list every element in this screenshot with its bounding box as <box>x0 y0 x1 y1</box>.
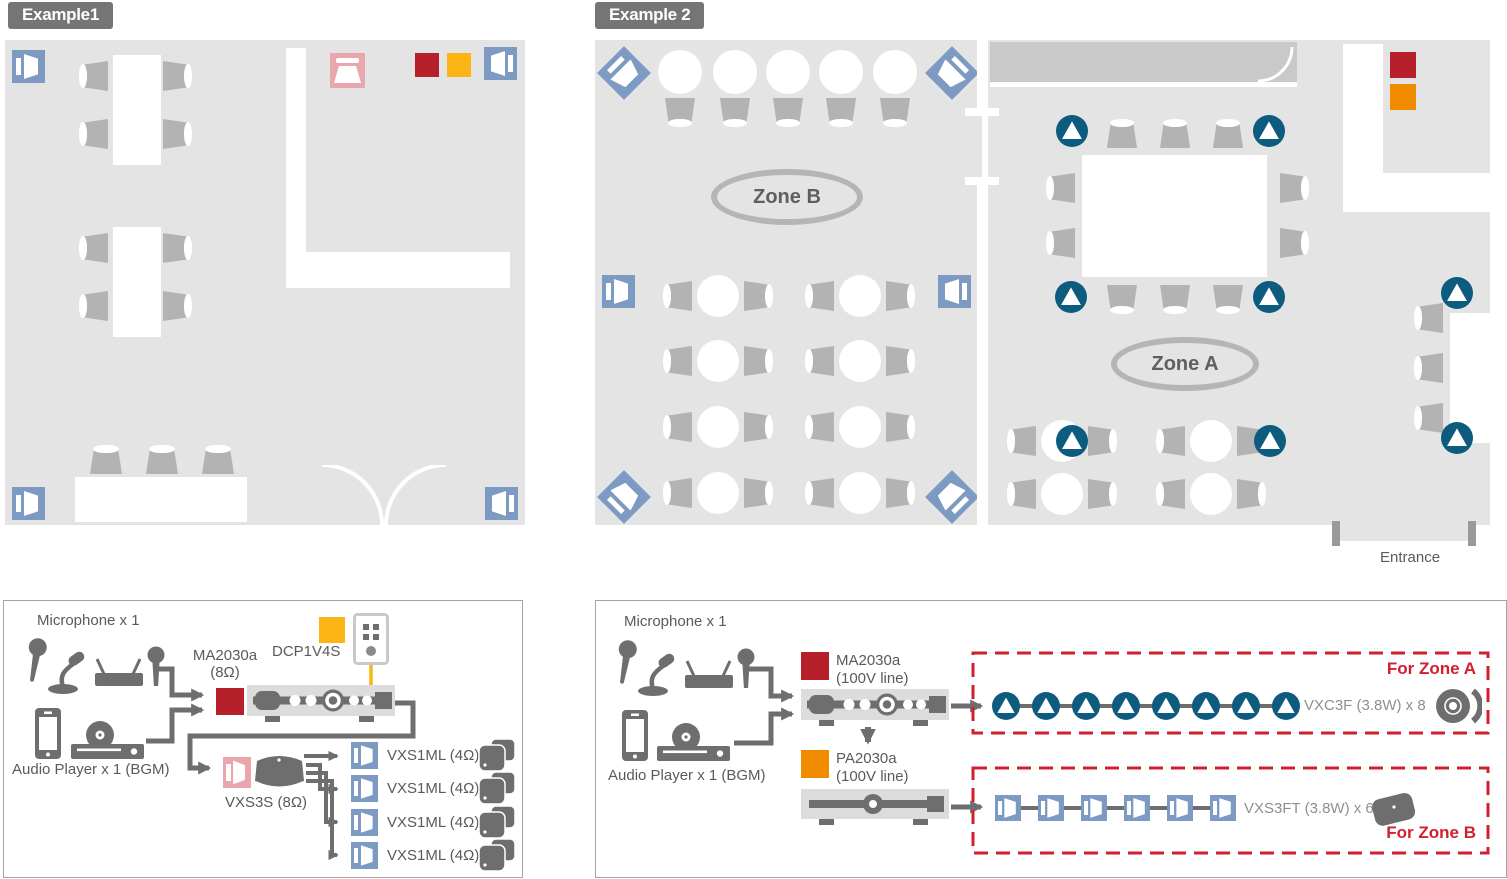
chair <box>744 346 774 376</box>
vxs1ml-product <box>477 837 519 873</box>
wall-speaker-icon <box>351 809 378 836</box>
dcp1v4s-legend <box>319 617 345 643</box>
chair <box>1006 426 1036 456</box>
corner-speaker-icon <box>925 470 979 524</box>
chair <box>744 412 774 442</box>
chair <box>720 98 750 128</box>
vxs1ml-product <box>477 804 519 840</box>
round-table <box>1190 473 1232 515</box>
dcp1v4s-panel <box>353 613 389 665</box>
ceiling-speaker-icon <box>1192 692 1220 720</box>
zone-b-tag: For Zone B <box>1256 823 1476 843</box>
entrance-floor <box>1340 525 1468 541</box>
zone-a-chain-label: VXC3F (3.8W) x 8 <box>1304 697 1426 715</box>
amp2-model-label: PA2030a <box>836 750 897 768</box>
chair <box>826 98 856 128</box>
round-table <box>697 472 739 514</box>
ceiling-speaker-icon <box>1441 422 1473 454</box>
pa2030a-legend <box>801 750 829 778</box>
chair <box>78 233 108 263</box>
chair <box>662 478 692 508</box>
smartphone-icon <box>621 709 649 763</box>
floor-plan-example2-zoneB: Zone B <box>595 40 982 525</box>
round-table <box>839 472 881 514</box>
chair <box>880 98 910 128</box>
ceiling-speaker-icon <box>1072 692 1100 720</box>
wall-speaker-icon <box>12 50 45 83</box>
zone-a-tag: For Zone A <box>1256 659 1476 679</box>
round-table <box>697 275 739 317</box>
cd-player-icon <box>70 719 150 761</box>
ceiling-speaker-icon <box>1272 692 1300 720</box>
chair <box>1213 118 1243 148</box>
chair <box>146 444 178 474</box>
chair <box>78 291 108 321</box>
double-door-icon <box>318 465 450 525</box>
wall-speaker-icon <box>1038 795 1064 821</box>
round-table <box>658 50 702 94</box>
chair <box>90 444 122 474</box>
amplifier-image <box>247 683 397 723</box>
pa2030a-legend <box>1390 84 1416 110</box>
chair <box>1413 303 1443 333</box>
ceiling-speaker-icon <box>1055 281 1087 313</box>
round-table <box>839 275 881 317</box>
chair <box>662 412 692 442</box>
amp1-model-label: MA2030a <box>836 652 900 670</box>
microphone-icons <box>19 633 167 695</box>
wall-speaker-icon <box>351 775 378 802</box>
counter <box>990 42 1297 82</box>
ceiling-speaker-icon <box>1253 281 1285 313</box>
chair <box>744 478 774 508</box>
chair <box>886 346 916 376</box>
ceiling-speaker-icon <box>1032 692 1060 720</box>
ceiling-speaker-icon <box>1056 115 1088 147</box>
example1-badge: Example1 <box>8 2 113 29</box>
chair <box>202 444 234 474</box>
speaker-row-label: VXS1ML (4Ω) <box>387 780 479 798</box>
floor-plan-example2-zoneA: Zone A <box>988 40 1490 525</box>
vxs3s-product <box>252 749 308 794</box>
corner-speaker-icon <box>597 46 651 100</box>
wall-speaker-icon <box>12 487 45 520</box>
chair <box>1045 173 1075 203</box>
chair <box>163 233 193 263</box>
wall <box>977 185 987 525</box>
entrance-post <box>1332 521 1340 546</box>
chair <box>78 119 108 149</box>
chair <box>163 291 193 321</box>
ma2030a-legend <box>415 53 439 77</box>
subwoofer-icon <box>223 757 251 788</box>
zone-b-chain-label: VXS3FT (3.8W) x 6 <box>1244 800 1374 818</box>
ceiling-speaker-icon <box>1253 115 1285 147</box>
vxs1ml-product <box>477 770 519 806</box>
chair <box>886 281 916 311</box>
smartphone-icon <box>34 707 62 761</box>
amp1-spec-label: (100V line) <box>836 670 909 688</box>
wall <box>965 177 999 185</box>
amplifier-image <box>801 687 951 727</box>
chair <box>1213 285 1243 315</box>
wall-speaker-icon <box>995 795 1021 821</box>
chair <box>1280 173 1310 203</box>
corner-speaker-icon <box>597 470 651 524</box>
wall-speaker-icon <box>1210 795 1236 821</box>
chair <box>804 281 834 311</box>
wall <box>286 252 510 288</box>
chair <box>1237 479 1267 509</box>
round-table <box>839 406 881 448</box>
ma2030a-legend <box>216 688 244 715</box>
chair <box>804 412 834 442</box>
chair <box>1160 285 1190 315</box>
amp-model-label: MA2030a <box>180 647 270 665</box>
example1-connection-diagram: Microphone x 1 Audio Player x 1 (BGM) M <box>3 600 523 878</box>
ceiling-speaker-chain <box>992 692 1312 720</box>
chair <box>163 119 193 149</box>
ma2030a-legend <box>1390 52 1416 78</box>
ceiling-speaker-icon <box>1112 692 1140 720</box>
ceiling-speaker-icon <box>992 692 1020 720</box>
chair <box>1107 118 1137 148</box>
vxc3f-product <box>1434 684 1482 728</box>
chair <box>163 61 193 91</box>
wall-speaker-icon <box>485 487 518 520</box>
wall-speaker-icon <box>351 842 378 869</box>
zone-b-ellipse: Zone B <box>711 169 863 225</box>
round-table <box>873 50 917 94</box>
wall-speaker-icon <box>938 275 971 308</box>
wall-speaker-icon <box>351 742 378 769</box>
chair <box>1413 353 1443 383</box>
table <box>1082 155 1267 277</box>
wall <box>965 108 999 116</box>
cd-player-icon <box>656 721 736 763</box>
microphone-label: Microphone x 1 <box>624 613 727 631</box>
chair <box>1088 426 1118 456</box>
round-table <box>1190 420 1232 462</box>
table <box>75 477 247 522</box>
wall-speaker-icon <box>1167 795 1193 821</box>
chair <box>744 281 774 311</box>
zone-a-label: Zone A <box>1151 353 1218 376</box>
amp2-spec-label: (100V line) <box>836 768 909 786</box>
chair <box>1280 228 1310 258</box>
chair <box>1006 479 1036 509</box>
round-table <box>697 340 739 382</box>
chair <box>804 346 834 376</box>
chair <box>662 281 692 311</box>
speaker-row-label: VXS1ML (4Ω) <box>387 747 479 765</box>
microphone-icons <box>609 635 757 697</box>
ma2030a-legend <box>801 652 829 680</box>
chair <box>1155 426 1185 456</box>
wall <box>977 40 987 112</box>
round-table <box>1041 473 1083 515</box>
wall-speaker-chain <box>995 795 1253 821</box>
chair <box>78 61 108 91</box>
entrance-label: Entrance <box>1380 549 1440 567</box>
chair <box>1155 479 1185 509</box>
amp-spec-label: (8Ω) <box>180 664 270 682</box>
dcp1v4s-legend <box>447 53 471 77</box>
zone-a-ellipse: Zone A <box>1111 337 1259 391</box>
door-arc-icon <box>1254 43 1296 85</box>
vxs1ml-product <box>477 737 519 773</box>
table <box>113 55 161 165</box>
round-table <box>766 50 810 94</box>
wall-speaker-icon <box>484 47 517 80</box>
wall-speaker-icon <box>1081 795 1107 821</box>
chair <box>886 478 916 508</box>
corridor <box>1343 173 1490 212</box>
wall <box>990 82 1297 87</box>
microphone-label: Microphone x 1 <box>37 612 140 630</box>
ceiling-speaker-icon <box>1254 425 1286 457</box>
corner-speaker-icon <box>925 46 979 100</box>
chair <box>665 98 695 128</box>
round-table <box>697 406 739 448</box>
amplifier-image <box>801 789 951 827</box>
chair <box>1160 118 1190 148</box>
example2-connection-diagram: Microphone x 1 Audio Player x 1 (BGM) MA… <box>595 600 1507 878</box>
wall-speaker-icon <box>602 275 635 308</box>
page: Example1 Example 2 <box>0 0 1507 879</box>
table <box>113 227 161 337</box>
floor-plan-example1 <box>5 40 525 525</box>
sub-model-label: VXS3S (8Ω) <box>216 794 316 812</box>
ceiling-speaker-icon <box>1152 692 1180 720</box>
zone-b-label: Zone B <box>753 186 821 209</box>
audio-player-label: Audio Player x 1 (BGM) <box>608 767 766 785</box>
chair <box>1045 228 1075 258</box>
chair <box>1107 285 1137 315</box>
audio-player-label: Audio Player x 1 (BGM) <box>12 761 170 779</box>
chair <box>886 412 916 442</box>
subwoofer-icon <box>330 53 365 88</box>
round-table <box>819 50 863 94</box>
round-table <box>713 50 757 94</box>
chair <box>773 98 803 128</box>
entrance-post <box>1468 521 1476 546</box>
chair <box>1088 479 1118 509</box>
speaker-row-label: VXS1ML (4Ω) <box>387 814 479 832</box>
wall-speaker-icon <box>1124 795 1150 821</box>
speaker-row-label: VXS1ML (4Ω) <box>387 847 479 865</box>
round-table <box>839 340 881 382</box>
controller-label: DCP1V4S <box>272 643 340 661</box>
example2-badge: Example 2 <box>595 2 704 29</box>
chair <box>662 346 692 376</box>
ceiling-speaker-icon <box>1232 692 1260 720</box>
chair <box>804 478 834 508</box>
ceiling-speaker-icon <box>1441 277 1473 309</box>
ceiling-speaker-icon <box>1056 425 1088 457</box>
chair <box>1413 403 1443 433</box>
